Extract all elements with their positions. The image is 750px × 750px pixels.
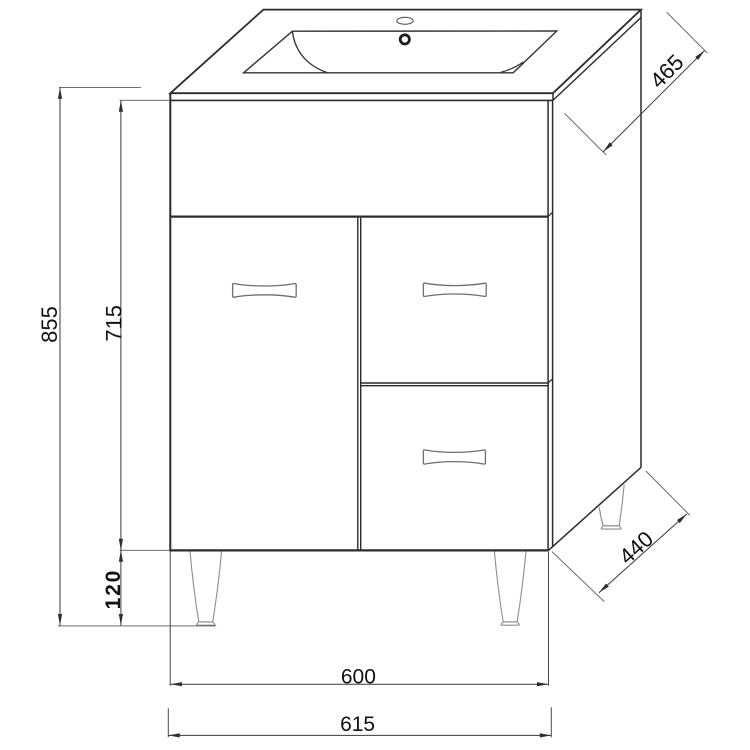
svg-text:120: 120 — [102, 569, 125, 609]
svg-text:615: 615 — [340, 713, 375, 736]
svg-text:855: 855 — [37, 306, 62, 343]
svg-text:715: 715 — [102, 305, 127, 342]
svg-text:600: 600 — [341, 666, 376, 689]
